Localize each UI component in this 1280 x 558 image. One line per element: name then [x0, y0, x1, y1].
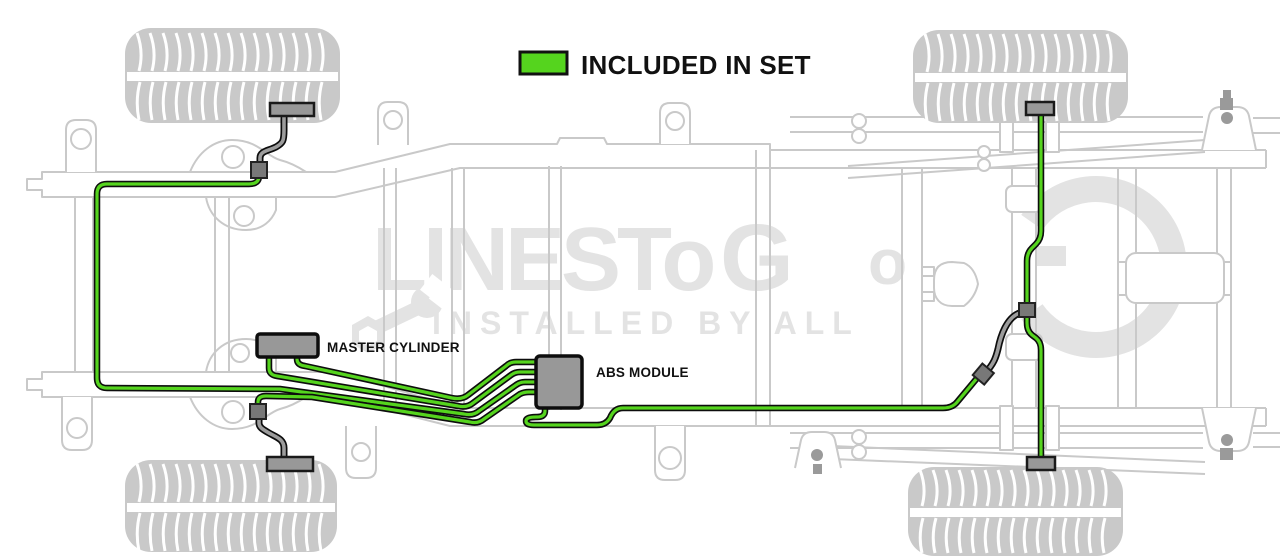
front-horn-upper: [27, 172, 93, 197]
legend-swatch: [520, 52, 567, 74]
tire-rear-lower: [908, 467, 1123, 556]
hose-front-lower-wheel: [259, 419, 284, 457]
diagram-canvas: LINESTo G o INSTALLED BY ALL: [0, 0, 1280, 558]
connector-front-upper: [251, 162, 267, 178]
tire-rear-upper: [913, 30, 1128, 123]
wheel-cylinder-front-lower: [267, 457, 313, 471]
master-cylinder: [257, 334, 318, 357]
abs-module-label: ABS MODULE: [596, 365, 689, 380]
wheel-cylinder-rear-upper: [1026, 102, 1054, 115]
tire-front-lower: [125, 460, 337, 552]
abs-module: [536, 356, 582, 408]
rear-axle-line: [526, 377, 978, 425]
front-crossmember: [75, 197, 93, 372]
watermark-tagline: INSTALLED BY ALL: [432, 305, 860, 341]
connector-rear-tee: [1019, 303, 1035, 317]
rear-leaf-spring-lower: [790, 406, 1256, 474]
connector-front-lower: [250, 404, 266, 419]
watermark: LINESTo G o INSTALLED BY ALL: [352, 189, 1174, 353]
legend-label: INCLUDED IN SET: [581, 50, 811, 80]
wheel-cylinder-rear-lower: [1027, 457, 1055, 470]
wheel-cylinder-front-upper: [270, 103, 314, 116]
spare-box: [1126, 253, 1224, 303]
legend: INCLUDED IN SET: [520, 50, 811, 80]
front-horn-lower: [27, 372, 93, 397]
brake-line-diagram: LINESTo G o INSTALLED BY ALL: [0, 0, 1280, 558]
master-cylinder-label: MASTER CYLINDER: [327, 340, 460, 355]
differential: [922, 262, 978, 306]
